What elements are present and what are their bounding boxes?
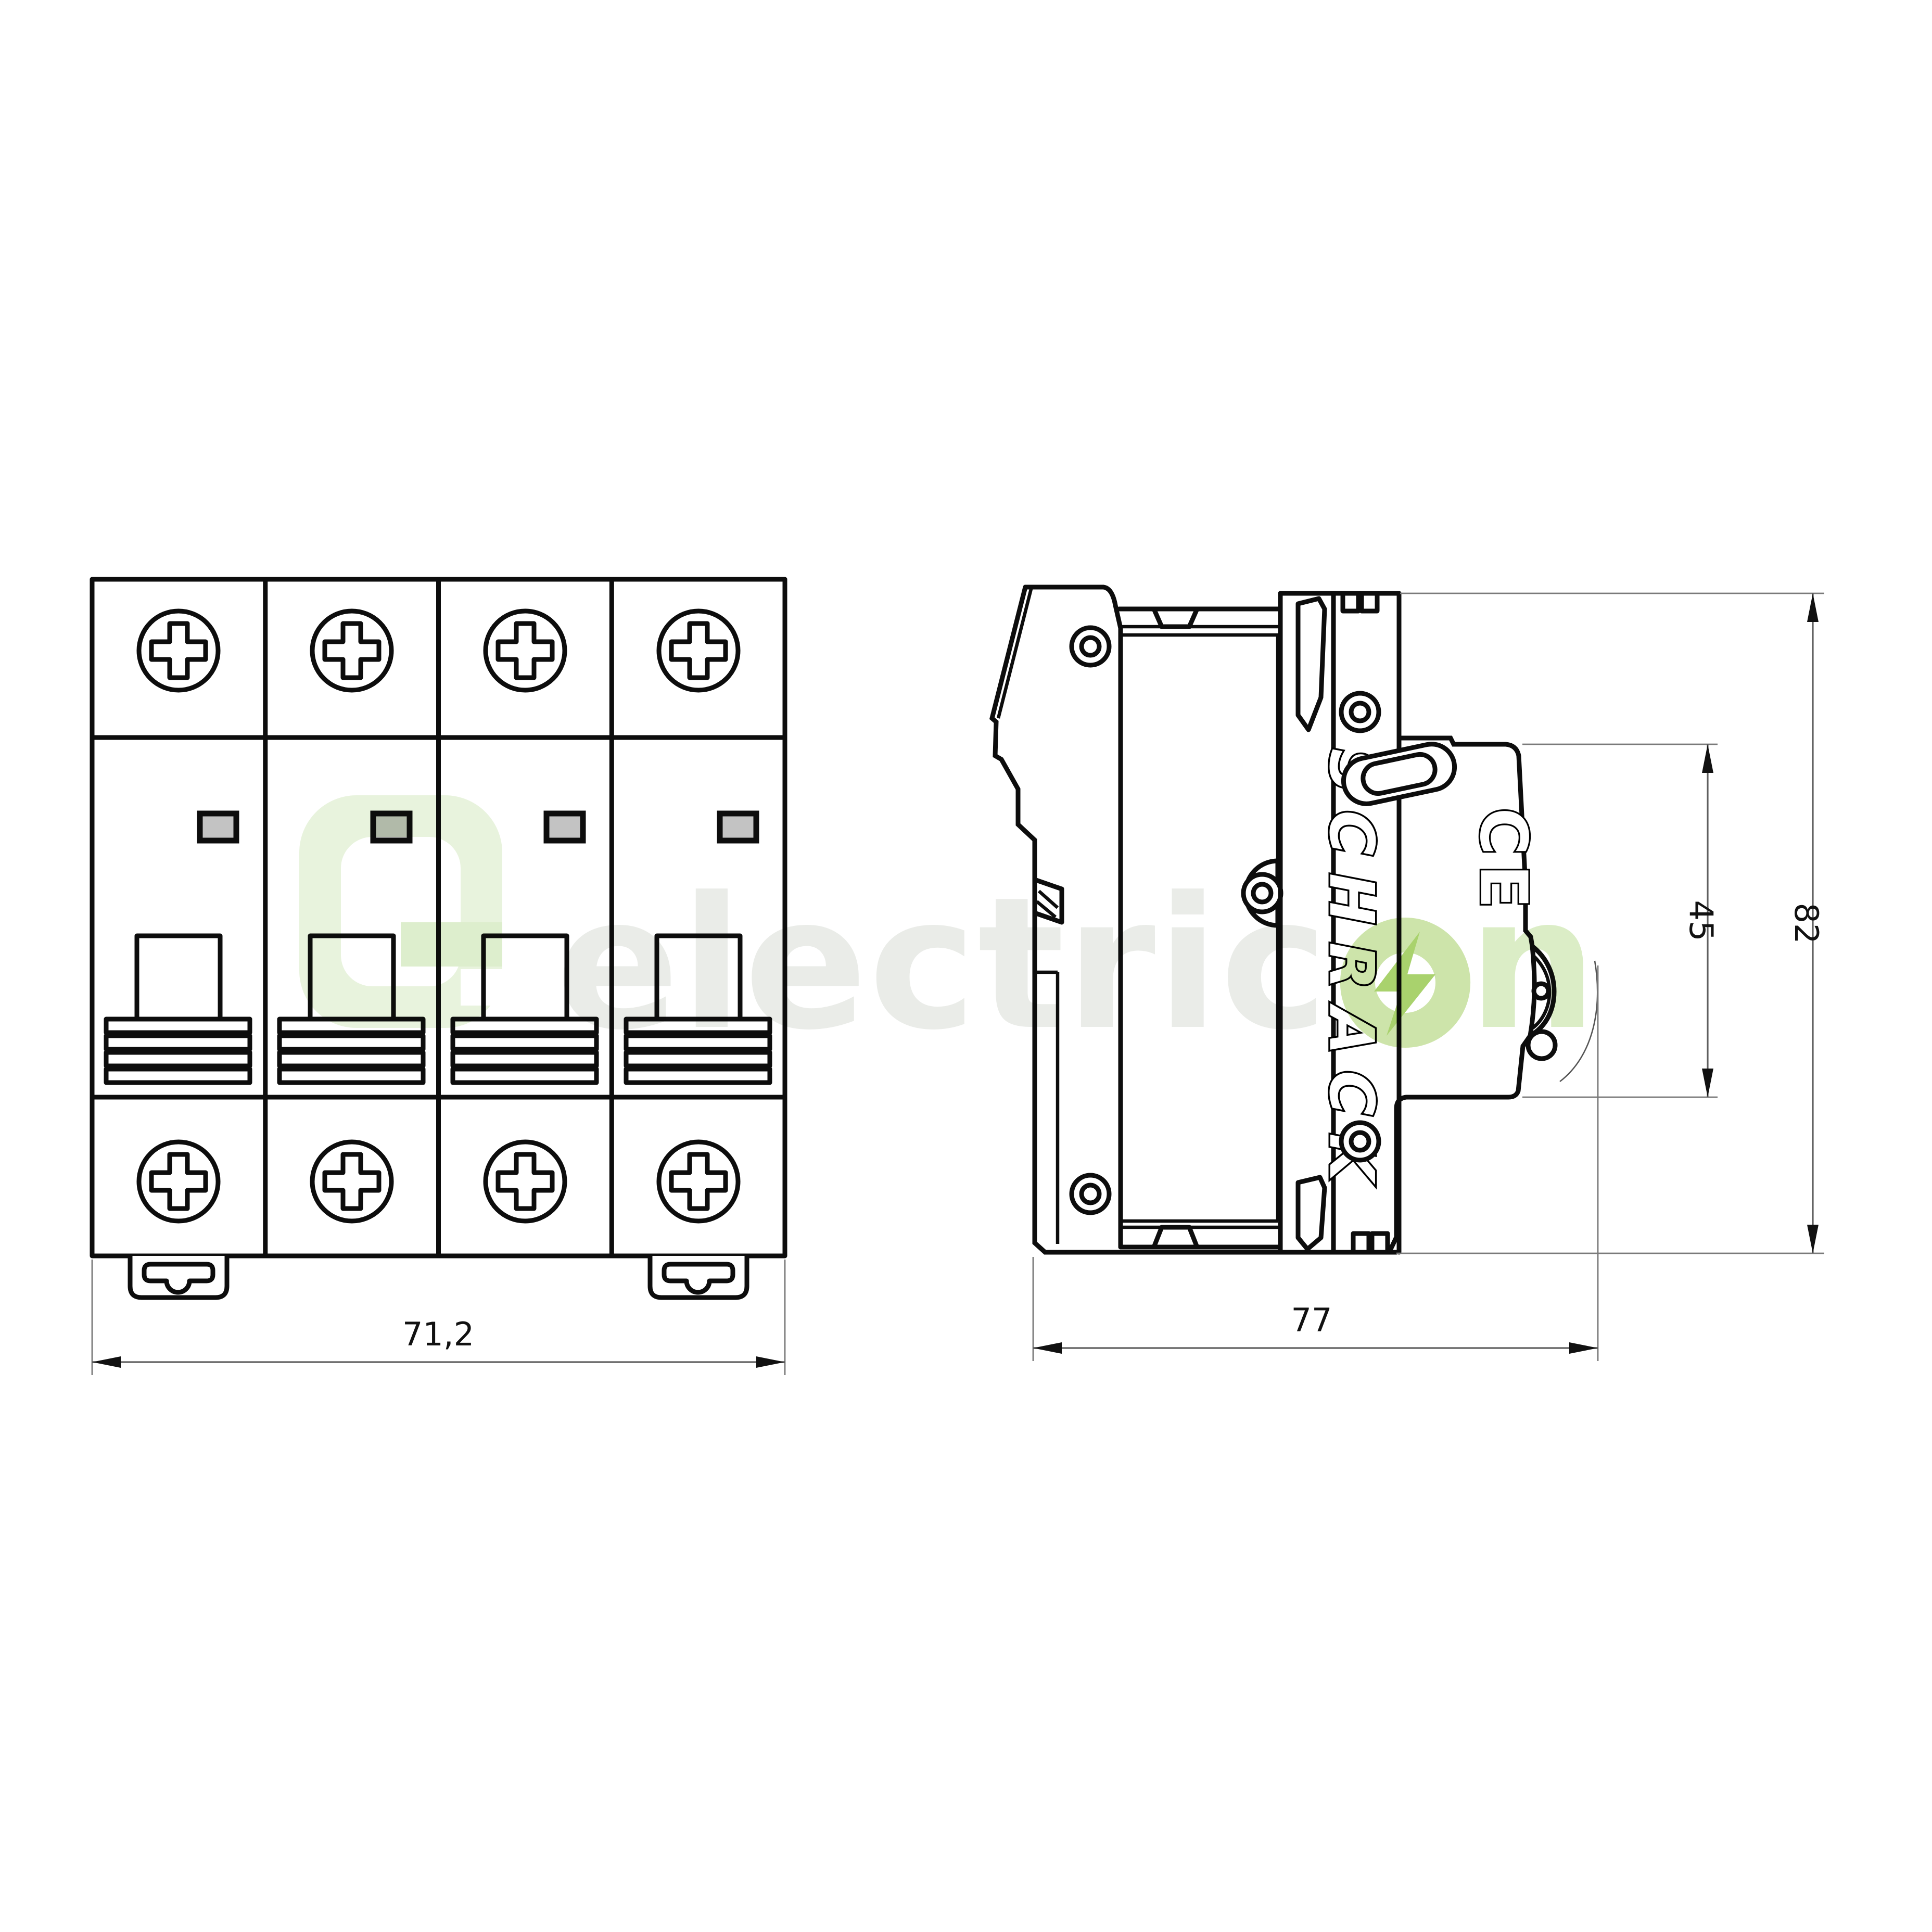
- screw-icon: [486, 1142, 565, 1221]
- screw-icon: [659, 611, 738, 690]
- screw-icon: [312, 1142, 391, 1221]
- rivet-icon: [1341, 693, 1379, 731]
- watermark-o-power-ring: [1340, 918, 1470, 1048]
- din-rail-clips: [130, 1256, 747, 1298]
- din-clip: [130, 1256, 227, 1298]
- screw-icon: [486, 611, 565, 690]
- watermark-word: electric: [556, 858, 1329, 1070]
- toggle-handle: [137, 936, 220, 1019]
- dimension-label: 45: [1682, 900, 1720, 942]
- terminal-ridge: [1343, 593, 1358, 611]
- rivet-icon: [1341, 1123, 1379, 1160]
- electricon-g-logo: [299, 795, 503, 1028]
- watermark-n: n: [1468, 858, 1597, 1070]
- dimension-label: 71,2: [402, 1315, 474, 1353]
- screw-icon: [139, 611, 218, 690]
- indicator-window: [720, 814, 756, 841]
- indicator-window: [546, 814, 583, 841]
- rib-stack: [106, 1019, 250, 1083]
- terminal-ridge: [1362, 593, 1377, 611]
- terminal-ridge: [1353, 1234, 1369, 1252]
- rivet-icon: [1072, 1175, 1109, 1213]
- dimension-label: 82: [1787, 903, 1825, 944]
- vent-slot: [1298, 599, 1325, 730]
- technical-drawing-canvas: SCHRACK: [0, 0, 1932, 1932]
- rib-stack: [279, 1019, 423, 1083]
- screw-icon: [312, 611, 391, 690]
- screw-icon: [139, 1142, 218, 1221]
- screw-icon: [659, 1142, 738, 1221]
- dimension-label: 77: [1291, 1301, 1332, 1339]
- housing-tab: [1154, 1227, 1197, 1247]
- din-clip: [650, 1256, 747, 1298]
- rivet-icon: [1072, 628, 1109, 665]
- indicator-window: [200, 814, 236, 841]
- terminal-ridge: [1372, 1234, 1388, 1252]
- dimension-overall-height: 82: [1396, 593, 1825, 1253]
- housing-tab: [1154, 609, 1197, 627]
